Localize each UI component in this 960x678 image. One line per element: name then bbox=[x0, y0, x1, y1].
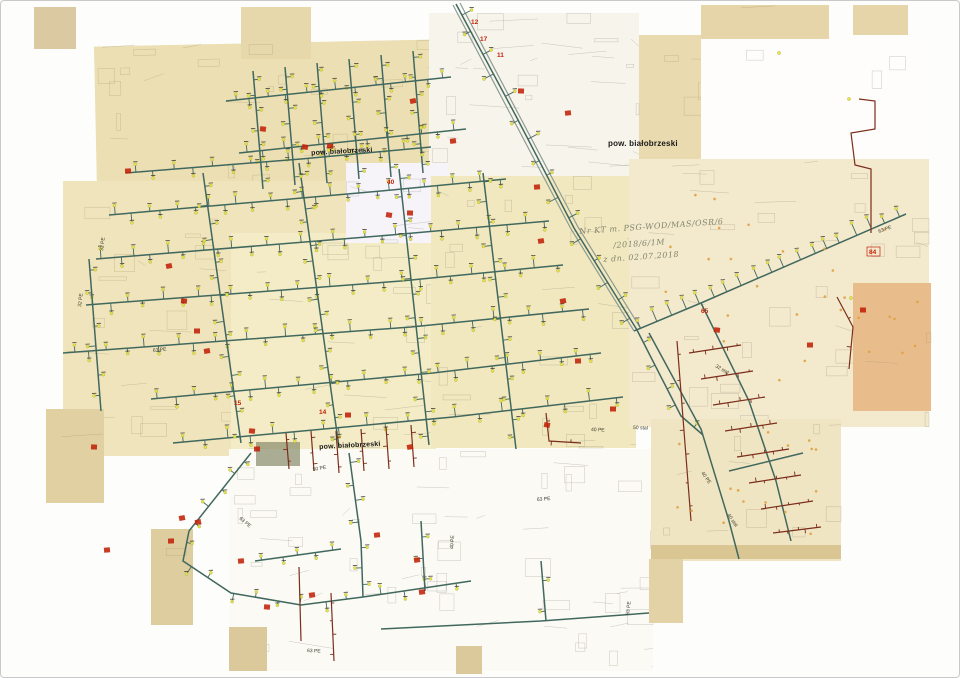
service-point-highlight bbox=[532, 162, 535, 165]
service-point-highlight bbox=[539, 610, 542, 613]
service-point-highlight bbox=[331, 438, 334, 441]
service-point-highlight bbox=[134, 163, 137, 166]
service-point-highlight bbox=[313, 206, 316, 209]
service-point-highlight bbox=[249, 398, 252, 401]
service-point-highlight bbox=[403, 368, 406, 371]
service-point-highlight bbox=[427, 85, 430, 88]
orange-dot bbox=[730, 258, 733, 261]
service-point-highlight bbox=[355, 65, 358, 68]
map-sheet bbox=[701, 39, 929, 167]
service-point-highlight bbox=[470, 264, 473, 267]
service-point-highlight bbox=[249, 444, 252, 447]
map-sheet bbox=[649, 559, 683, 623]
orange-dot bbox=[815, 490, 818, 493]
service-point-highlight bbox=[246, 463, 249, 466]
service-point-highlight bbox=[217, 254, 220, 257]
orange-dot bbox=[669, 246, 672, 249]
service-point-highlight bbox=[647, 367, 650, 370]
service-point-highlight bbox=[327, 135, 330, 138]
service-point-highlight bbox=[229, 333, 232, 336]
map-sheet bbox=[229, 449, 653, 671]
pipe-size-label: 50 stal bbox=[633, 425, 648, 432]
red-number-label: 84 bbox=[869, 249, 877, 256]
service-point-highlight bbox=[185, 572, 188, 575]
service-point-highlight bbox=[409, 238, 412, 241]
service-point-highlight bbox=[304, 260, 307, 263]
service-point-highlight bbox=[347, 387, 350, 390]
service-point-highlight bbox=[214, 321, 217, 324]
service-point-highlight bbox=[362, 371, 365, 374]
service-point-highlight bbox=[94, 268, 97, 271]
service-point-highlight bbox=[406, 317, 409, 320]
service-point-highlight bbox=[132, 246, 135, 249]
service-point-highlight bbox=[522, 414, 525, 417]
service-point-highlight bbox=[433, 422, 436, 425]
service-point-highlight bbox=[435, 266, 438, 269]
service-point-highlight bbox=[561, 305, 564, 308]
pipe-size-label: 63 PE bbox=[307, 648, 322, 655]
service-point-highlight bbox=[489, 278, 492, 281]
service-point-highlight bbox=[735, 274, 738, 277]
service-point-highlight bbox=[313, 122, 316, 125]
service-point-highlight bbox=[506, 233, 509, 236]
service-point-highlight bbox=[201, 500, 204, 503]
service-point-highlight bbox=[390, 132, 393, 135]
service-point-highlight bbox=[650, 308, 653, 311]
service-point-highlight bbox=[472, 329, 475, 332]
service-point-highlight bbox=[148, 205, 151, 208]
service-point-highlight bbox=[582, 318, 585, 321]
service-point-highlight bbox=[491, 369, 494, 372]
service-point-highlight bbox=[315, 557, 318, 560]
service-stub bbox=[740, 429, 741, 433]
service-point-highlight bbox=[574, 350, 577, 353]
service-point-highlight bbox=[317, 136, 320, 139]
service-point-highlight bbox=[511, 377, 514, 380]
red-number-marker bbox=[407, 210, 413, 215]
red-number-marker bbox=[104, 547, 110, 553]
orange-dot bbox=[815, 448, 818, 451]
red-number-marker bbox=[860, 307, 866, 312]
service-point-highlight bbox=[305, 84, 308, 87]
service-point-highlight bbox=[721, 281, 724, 284]
service-point-highlight bbox=[378, 584, 381, 587]
orange-dot bbox=[778, 379, 781, 382]
orange-dot bbox=[764, 501, 767, 504]
service-stub bbox=[713, 346, 714, 350]
county-boundary-label-east: pow. białobrzeski bbox=[608, 139, 678, 148]
red-number-label: 40 bbox=[387, 179, 395, 186]
service-point-highlight bbox=[320, 68, 323, 71]
service-point-highlight bbox=[437, 194, 440, 197]
service-point-highlight bbox=[296, 143, 299, 146]
red-number-marker bbox=[254, 446, 260, 451]
service-point-highlight bbox=[414, 256, 417, 259]
red-number-marker bbox=[560, 298, 567, 304]
service-point-highlight bbox=[318, 243, 321, 246]
service-stub bbox=[705, 351, 706, 355]
service-point-highlight bbox=[271, 424, 274, 427]
service-point-highlight bbox=[441, 237, 444, 240]
service-point-highlight bbox=[463, 33, 466, 36]
service-point-highlight bbox=[665, 302, 668, 305]
service-point-highlight bbox=[210, 277, 213, 280]
service-point-highlight bbox=[895, 207, 898, 210]
service-point-highlight bbox=[381, 240, 384, 243]
service-point-highlight bbox=[276, 604, 279, 607]
service-point-highlight bbox=[385, 129, 388, 132]
red-number-marker bbox=[204, 348, 211, 354]
service-point-highlight bbox=[113, 204, 116, 207]
service-point-highlight bbox=[465, 358, 468, 361]
orange-dot bbox=[678, 443, 681, 446]
red-number-marker bbox=[181, 298, 187, 303]
service-point-highlight bbox=[709, 286, 712, 289]
sheets-layer bbox=[34, 5, 931, 674]
service-point-highlight bbox=[457, 222, 460, 225]
service-point-highlight bbox=[564, 410, 567, 413]
service-point-highlight bbox=[451, 175, 454, 178]
service-point-highlight bbox=[325, 312, 328, 315]
service-point-highlight bbox=[266, 168, 269, 171]
service-point-highlight bbox=[266, 179, 269, 182]
service-stub bbox=[753, 455, 754, 459]
service-point-highlight bbox=[265, 237, 268, 240]
orange-dot bbox=[782, 250, 785, 253]
service-point-highlight bbox=[264, 343, 267, 346]
service-point-highlight bbox=[121, 265, 124, 268]
service-point-highlight bbox=[320, 367, 323, 370]
service-point-highlight bbox=[404, 598, 407, 601]
service-point-highlight bbox=[333, 79, 336, 82]
service-point-highlight bbox=[211, 158, 214, 161]
service-point-highlight bbox=[821, 238, 824, 241]
service-point-highlight bbox=[407, 176, 410, 179]
service-stub bbox=[759, 394, 760, 398]
service-point-highlight bbox=[436, 364, 439, 367]
service-point-highlight bbox=[517, 418, 520, 421]
red-number-label: 15 bbox=[234, 400, 242, 407]
pipe-size-label: 40 PE bbox=[449, 534, 456, 549]
service-point-highlight bbox=[192, 352, 195, 355]
service-point-highlight bbox=[318, 277, 321, 280]
service-point-highlight bbox=[328, 184, 331, 187]
map-sheet bbox=[46, 409, 104, 503]
service-point-highlight bbox=[345, 158, 348, 161]
orange-dot bbox=[664, 290, 667, 293]
red-number-marker bbox=[610, 406, 616, 411]
service-point-highlight bbox=[440, 70, 443, 73]
red-number-marker bbox=[807, 342, 813, 347]
map-sheet bbox=[229, 627, 267, 671]
service-point-highlight bbox=[508, 338, 511, 341]
service-point-highlight bbox=[366, 277, 369, 280]
service-point-highlight bbox=[778, 255, 781, 258]
service-point-highlight bbox=[419, 435, 422, 438]
service-point-highlight bbox=[238, 373, 241, 376]
service-point-highlight bbox=[102, 373, 105, 376]
orange-dot bbox=[840, 309, 843, 312]
red-number-marker bbox=[714, 327, 721, 333]
service-point-highlight bbox=[294, 106, 297, 109]
service-point-highlight bbox=[504, 295, 507, 298]
service-point-highlight bbox=[295, 549, 298, 552]
red-number-marker bbox=[194, 328, 200, 333]
orange-dot bbox=[796, 313, 799, 316]
service-point-highlight bbox=[282, 562, 285, 565]
service-point-highlight bbox=[93, 394, 96, 397]
map-sheet bbox=[853, 283, 931, 411]
red-number-marker bbox=[260, 126, 267, 132]
red-number-marker bbox=[249, 428, 255, 433]
service-point-highlight bbox=[331, 336, 334, 339]
service-point-highlight bbox=[232, 171, 235, 174]
service-point-highlight bbox=[255, 590, 258, 593]
yellow-dot bbox=[777, 51, 780, 54]
service-point-highlight bbox=[680, 296, 683, 299]
service-point-highlight bbox=[297, 378, 300, 381]
service-point-highlight bbox=[352, 292, 355, 295]
service-point-highlight bbox=[280, 298, 283, 301]
yellow-dot bbox=[849, 296, 852, 299]
service-point-highlight bbox=[203, 239, 206, 242]
service-point-highlight bbox=[326, 609, 329, 612]
service-point-highlight bbox=[492, 220, 495, 223]
service-point-highlight bbox=[538, 352, 541, 355]
service-point-highlight bbox=[369, 336, 372, 339]
orange-dot bbox=[729, 487, 732, 490]
service-point-highlight bbox=[452, 121, 455, 124]
service-point-highlight bbox=[547, 579, 550, 582]
orange-dot bbox=[756, 285, 759, 288]
service-point-highlight bbox=[413, 143, 416, 146]
service-point-highlight bbox=[408, 195, 411, 198]
orange-dot bbox=[803, 360, 806, 363]
service-point-highlight bbox=[667, 407, 670, 410]
orange-dot bbox=[707, 258, 710, 261]
service-point-highlight bbox=[362, 498, 365, 501]
service-point-highlight bbox=[693, 291, 696, 294]
service-point-highlight bbox=[422, 180, 425, 183]
service-point-highlight bbox=[258, 78, 261, 81]
service-point-highlight bbox=[795, 249, 798, 252]
service-point-highlight bbox=[420, 93, 423, 96]
service-point-highlight bbox=[557, 269, 560, 272]
map-sheet bbox=[651, 545, 841, 559]
red-number-label: 14 bbox=[319, 409, 327, 416]
service-point-highlight bbox=[149, 260, 152, 263]
service-point-highlight bbox=[752, 267, 755, 270]
service-point-highlight bbox=[359, 133, 362, 136]
service-point-highlight bbox=[365, 414, 368, 417]
service-point-highlight bbox=[296, 282, 299, 285]
service-stub bbox=[763, 425, 764, 429]
service-point-highlight bbox=[436, 135, 439, 138]
service-point-highlight bbox=[483, 279, 486, 282]
service-point-highlight bbox=[377, 112, 380, 115]
service-point-highlight bbox=[441, 332, 444, 335]
service-point-highlight bbox=[155, 390, 158, 393]
service-point-highlight bbox=[328, 349, 331, 352]
service-point-highlight bbox=[209, 571, 212, 574]
service-point-highlight bbox=[624, 294, 627, 297]
service-point-highlight bbox=[357, 460, 360, 463]
service-point-highlight bbox=[476, 236, 479, 239]
service-point-highlight bbox=[421, 153, 424, 156]
red-number-marker bbox=[238, 558, 244, 564]
service-point-highlight bbox=[86, 292, 89, 295]
service-point-highlight bbox=[322, 421, 325, 424]
service-point-highlight bbox=[339, 415, 342, 418]
orange-dot bbox=[747, 223, 750, 226]
service-point-highlight bbox=[850, 222, 853, 225]
service-point-highlight bbox=[636, 319, 639, 322]
service-point-highlight bbox=[210, 303, 213, 306]
service-point-highlight bbox=[406, 414, 409, 417]
service-point-highlight bbox=[313, 325, 316, 328]
red-number-marker bbox=[345, 412, 351, 417]
service-point-highlight bbox=[353, 133, 356, 136]
service-point-highlight bbox=[368, 583, 371, 586]
service-point-highlight bbox=[162, 288, 165, 291]
red-number-marker bbox=[264, 604, 270, 610]
service-point-highlight bbox=[543, 228, 546, 231]
service-point-highlight bbox=[346, 485, 349, 488]
red-number-label: 17 bbox=[480, 36, 488, 43]
service-point-highlight bbox=[478, 172, 481, 175]
service-point-highlight bbox=[233, 435, 236, 438]
service-point-highlight bbox=[429, 577, 432, 580]
map-sheet bbox=[853, 5, 908, 35]
orange-dot bbox=[737, 489, 740, 492]
service-point-highlight bbox=[505, 354, 508, 357]
service-point-highlight bbox=[104, 343, 107, 346]
service-point-highlight bbox=[532, 257, 535, 260]
map-sheet bbox=[231, 233, 436, 451]
service-point-highlight bbox=[227, 395, 230, 398]
service-point-highlight bbox=[198, 205, 201, 208]
red-number-marker bbox=[125, 168, 131, 173]
service-point-highlight bbox=[482, 245, 485, 248]
service-point-highlight bbox=[419, 288, 422, 291]
map-mosaic-svg: 121711658440151463 PE32 PE50 PE63 PE63 P… bbox=[1, 1, 959, 677]
service-point-highlight bbox=[417, 292, 420, 295]
service-point-highlight bbox=[126, 352, 129, 355]
service-point-highlight bbox=[395, 196, 398, 199]
red-number-label: 12 bbox=[471, 19, 479, 26]
service-point-highlight bbox=[411, 111, 414, 114]
orange-dot bbox=[742, 500, 745, 503]
service-point-highlight bbox=[865, 216, 868, 219]
service-point-highlight bbox=[247, 94, 250, 97]
service-point-highlight bbox=[409, 219, 412, 222]
service-point-highlight bbox=[403, 75, 406, 78]
service-point-highlight bbox=[248, 106, 251, 109]
service-point-highlight bbox=[130, 221, 133, 224]
map-sheet bbox=[34, 7, 76, 49]
red-number-marker bbox=[534, 184, 540, 189]
service-point-highlight bbox=[177, 335, 180, 338]
service-point-highlight bbox=[524, 213, 527, 216]
service-point-highlight bbox=[482, 77, 485, 80]
red-number-marker bbox=[450, 138, 457, 144]
service-point-highlight bbox=[182, 256, 185, 259]
service-point-highlight bbox=[519, 274, 522, 277]
service-point-highlight bbox=[547, 201, 550, 204]
service-point-highlight bbox=[209, 184, 212, 187]
orange-dot bbox=[888, 315, 891, 318]
service-point-highlight bbox=[234, 93, 237, 96]
orange-dot bbox=[832, 269, 835, 272]
service-point-highlight bbox=[349, 521, 352, 524]
service-point-highlight bbox=[198, 525, 201, 528]
orange-dot bbox=[718, 227, 721, 230]
orange-dot bbox=[722, 521, 725, 524]
orange-dot bbox=[914, 345, 917, 348]
orange-dot bbox=[808, 439, 811, 442]
service-point-highlight bbox=[181, 434, 184, 437]
service-point-highlight bbox=[286, 207, 289, 210]
service-point-highlight bbox=[357, 100, 360, 103]
service-point-highlight bbox=[508, 436, 511, 439]
map-sheet bbox=[429, 13, 639, 178]
orange-dot bbox=[784, 511, 787, 514]
service-point-highlight bbox=[228, 468, 231, 471]
service-point-highlight bbox=[419, 319, 422, 322]
service-point-highlight bbox=[470, 9, 473, 12]
service-point-highlight bbox=[328, 275, 331, 278]
service-point-highlight bbox=[527, 307, 530, 310]
service-point-highlight bbox=[262, 143, 265, 146]
service-point-highlight bbox=[418, 381, 421, 384]
service-point-highlight bbox=[499, 185, 502, 188]
service-point-highlight bbox=[383, 289, 386, 292]
service-point-highlight bbox=[331, 230, 334, 233]
service-point-highlight bbox=[454, 379, 457, 382]
service-point-highlight bbox=[810, 244, 813, 247]
service-point-highlight bbox=[215, 222, 218, 225]
service-point-highlight bbox=[293, 191, 296, 194]
service-point-highlight bbox=[313, 391, 316, 394]
orange-dot bbox=[843, 296, 846, 299]
service-point-highlight bbox=[414, 398, 417, 401]
service-point-highlight bbox=[86, 345, 89, 348]
service-point-highlight bbox=[224, 491, 227, 494]
service-point-highlight bbox=[835, 234, 838, 237]
service-point-highlight bbox=[502, 398, 505, 401]
service-point-highlight bbox=[449, 281, 452, 284]
service-point-highlight bbox=[241, 409, 244, 412]
service-point-highlight bbox=[315, 249, 318, 252]
orange-dot bbox=[916, 301, 919, 304]
service-point-highlight bbox=[374, 78, 377, 81]
service-point-highlight bbox=[314, 329, 317, 332]
orange-dot bbox=[713, 198, 716, 201]
service-point-highlight bbox=[320, 94, 323, 97]
service-point-highlight bbox=[300, 221, 303, 224]
service-point-highlight bbox=[214, 334, 217, 337]
service-point-highlight bbox=[245, 142, 248, 145]
service-point-highlight bbox=[419, 55, 422, 58]
service-point-highlight bbox=[766, 261, 769, 264]
service-point-highlight bbox=[283, 325, 286, 328]
map-sheet bbox=[456, 646, 482, 674]
service-point-highlight bbox=[388, 97, 391, 100]
service-point-highlight bbox=[224, 212, 227, 215]
service-point-highlight bbox=[542, 323, 545, 326]
service-point-highlight bbox=[493, 318, 496, 321]
service-point-highlight bbox=[252, 130, 255, 133]
